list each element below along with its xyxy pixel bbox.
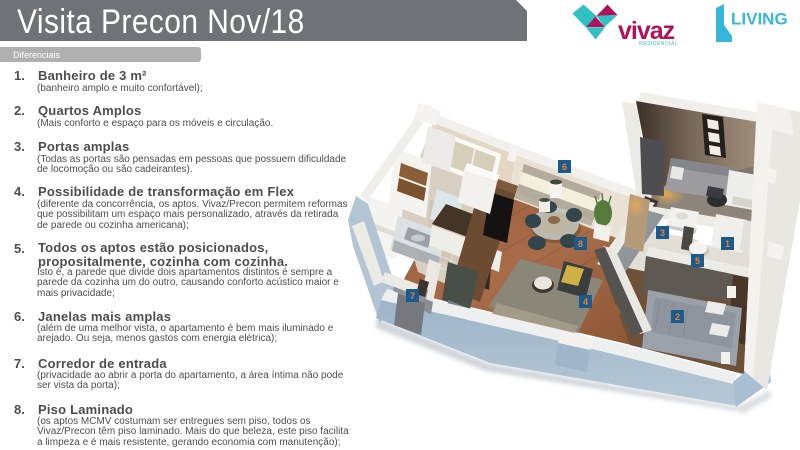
svg-text:LIVING: LIVING xyxy=(731,10,788,29)
svg-text:1: 1 xyxy=(725,239,730,249)
svg-text:5: 5 xyxy=(695,256,700,266)
svg-text:7: 7 xyxy=(410,291,415,301)
svg-text:3: 3 xyxy=(660,228,665,238)
svg-text:4: 4 xyxy=(583,297,588,307)
svg-text:6: 6 xyxy=(562,162,567,172)
svg-text:8: 8 xyxy=(578,239,583,249)
svg-text:2: 2 xyxy=(675,312,680,322)
svg-text:RESIDENCIAL: RESIDENCIAL xyxy=(639,41,678,47)
